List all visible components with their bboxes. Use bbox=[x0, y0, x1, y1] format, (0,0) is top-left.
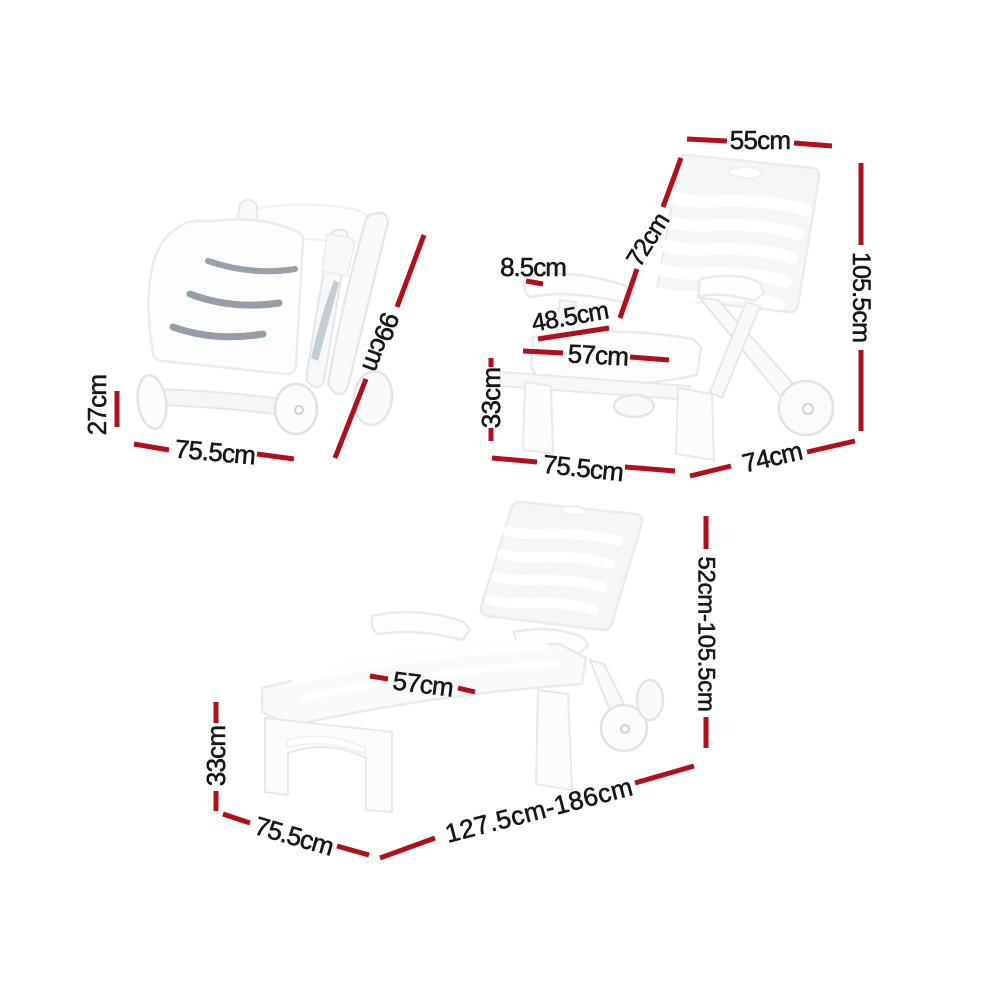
svg-text:75.5cm: 75.5cm bbox=[174, 434, 257, 471]
svg-text:75.5cm: 75.5cm bbox=[251, 810, 337, 861]
svg-text:55cm: 55cm bbox=[730, 125, 790, 155]
svg-text:52cm-105.5cm: 52cm-105.5cm bbox=[693, 556, 720, 711]
svg-text:57cm: 57cm bbox=[567, 338, 629, 371]
svg-text:74cm: 74cm bbox=[739, 436, 805, 479]
svg-text:33cm: 33cm bbox=[476, 368, 506, 428]
svg-text:105.5cm: 105.5cm bbox=[847, 252, 875, 342]
svg-text:27cm: 27cm bbox=[82, 375, 112, 435]
svg-text:8.5cm: 8.5cm bbox=[500, 252, 566, 282]
svg-text:33cm: 33cm bbox=[201, 726, 231, 786]
svg-text:75.5cm: 75.5cm bbox=[541, 449, 624, 487]
